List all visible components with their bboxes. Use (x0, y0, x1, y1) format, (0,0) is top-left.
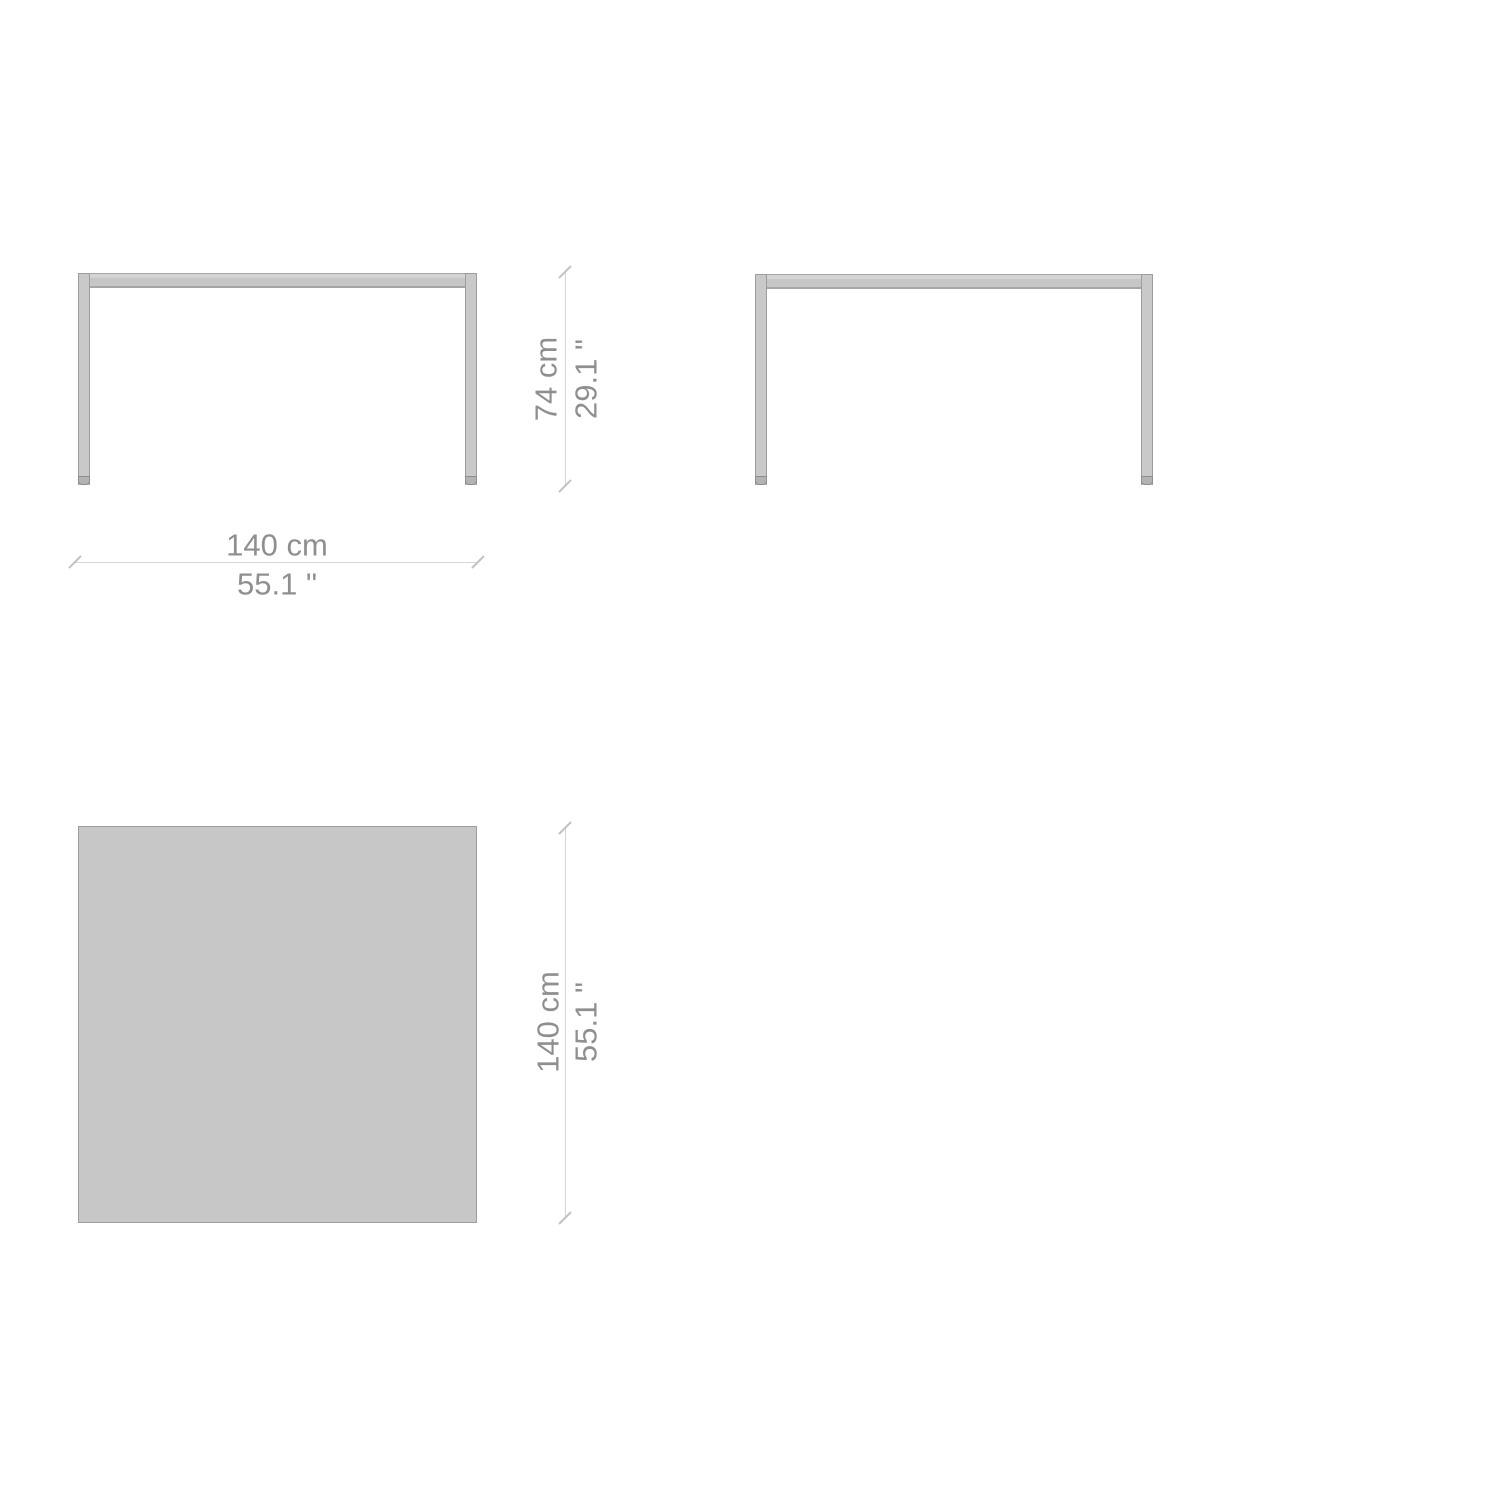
plan-depth-imperial-label: 55.1 " (571, 982, 602, 1062)
front-right-leg (465, 273, 477, 485)
side-right-leg-foot (1141, 476, 1153, 485)
side-left-leg-foot (755, 476, 767, 485)
front-left-leg-foot (78, 476, 90, 485)
front-height-dimension-line (565, 272, 566, 486)
front-tabletop-edge (78, 273, 477, 288)
front-right-leg-foot (465, 476, 477, 485)
front-height-imperial-label: 29.1 " (571, 339, 602, 419)
side-left-leg (755, 274, 767, 485)
front-width-metric-label: 140 cm (226, 530, 328, 561)
front-width-imperial-label: 55.1 " (237, 569, 317, 600)
plan-depth-metric-label: 140 cm (533, 971, 564, 1073)
side-right-leg (1141, 274, 1153, 485)
dimension-drawing-canvas: 74 cm 29.1 " 140 cm 55.1 " 140 cm 55.1 " (0, 0, 1500, 1500)
side-tabletop-edge (755, 274, 1153, 289)
plan-tabletop-surface (78, 826, 477, 1223)
front-height-metric-label: 74 cm (531, 337, 562, 421)
front-left-leg (78, 273, 90, 485)
